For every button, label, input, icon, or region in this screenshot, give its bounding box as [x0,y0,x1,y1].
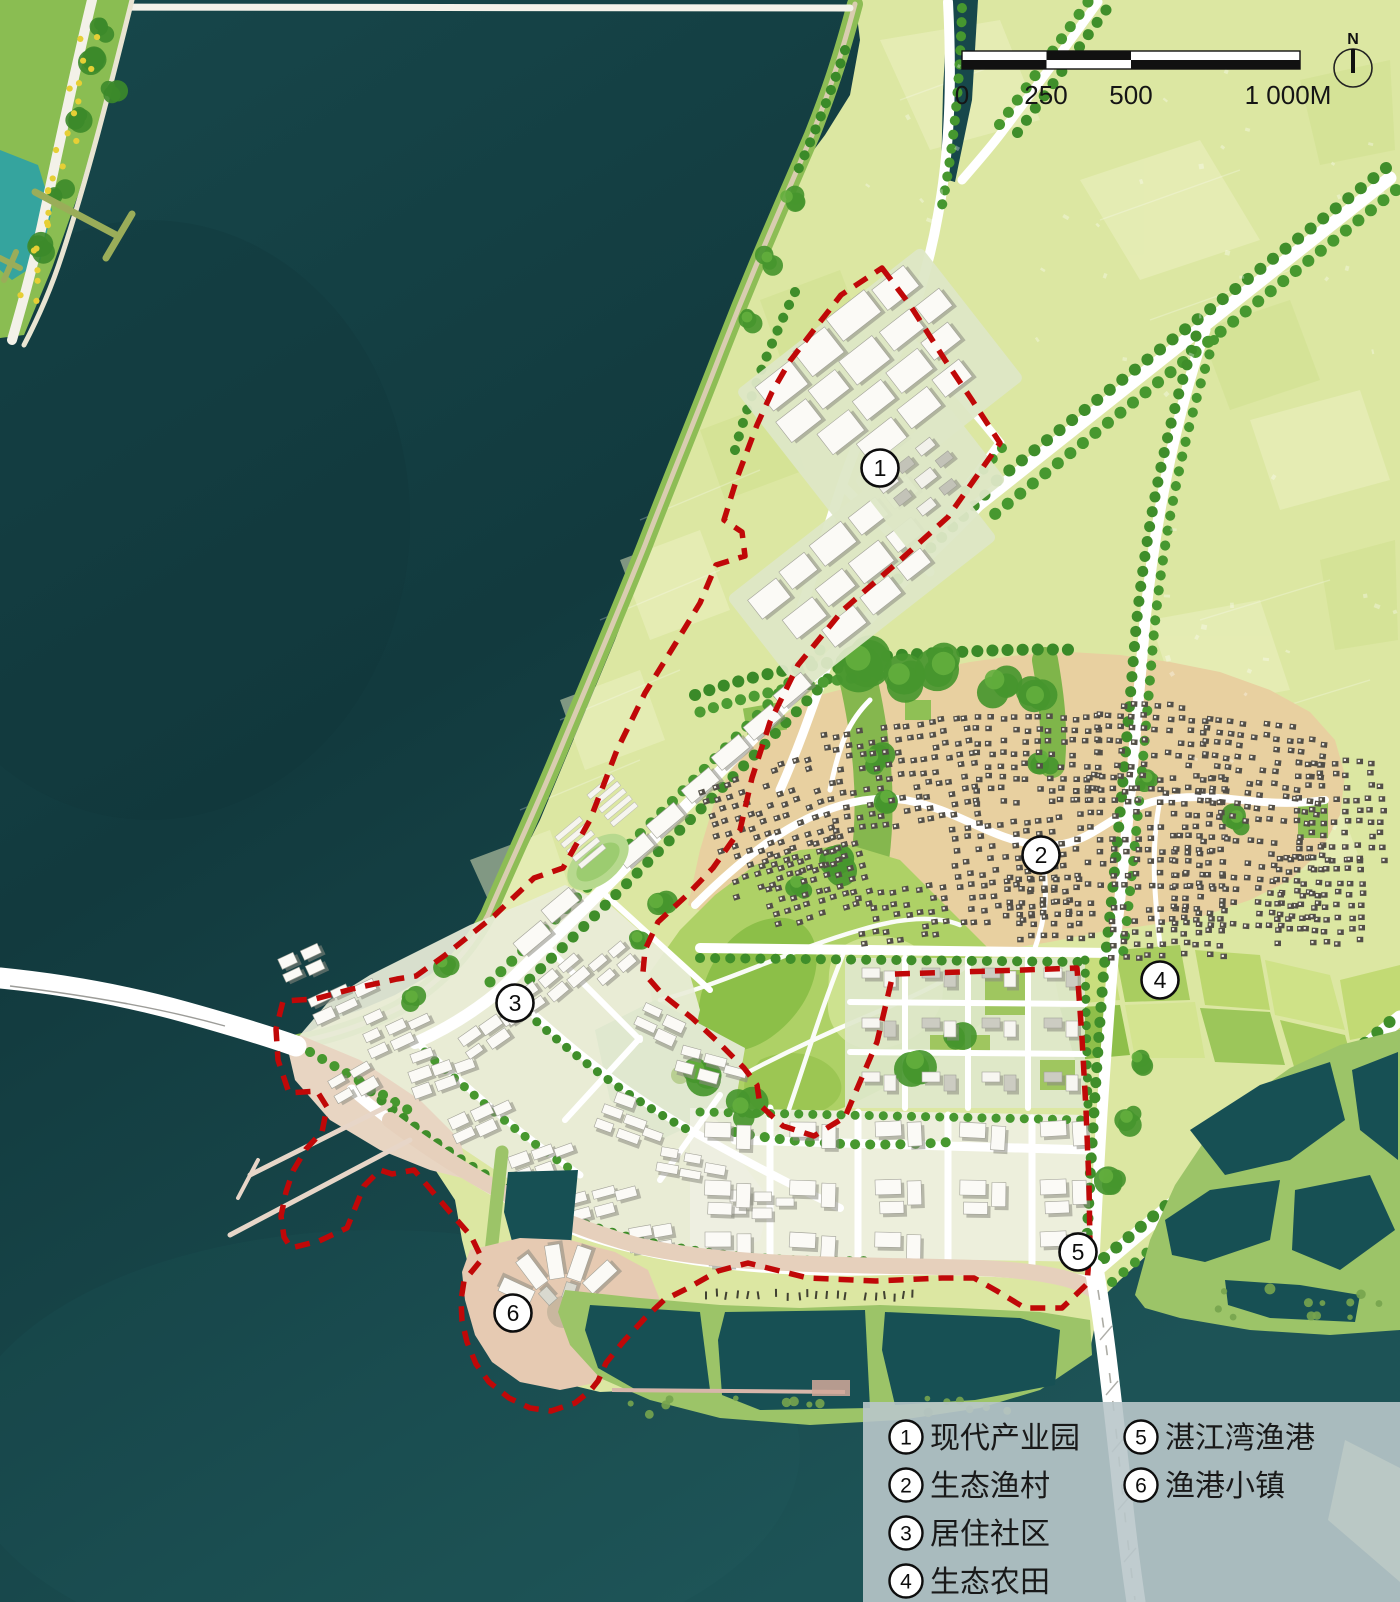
legend-item-1: 1 现代产业园 [890,1421,1081,1456]
svg-text:2: 2 [1035,842,1048,868]
svg-text:4: 4 [1154,967,1167,993]
legend-num-3: 3 [900,1523,912,1546]
marker-5: 5 [1060,1234,1097,1271]
legend-label-2: 生态渔村 [930,1470,1050,1503]
legend-item-5: 5 湛江湾渔港 [1125,1421,1316,1456]
legend-label-3: 居住社区 [930,1518,1050,1551]
legend-item-3: 3 居住社区 [890,1517,1051,1552]
north-label: N [1347,31,1359,48]
marker-1: 1 [862,450,899,487]
svg-text:3: 3 [509,990,522,1016]
legend-item-4: 4 生态农田 [890,1565,1051,1600]
svg-text:1: 1 [874,455,887,481]
marker-6: 6 [495,1295,532,1332]
map-canvas: 123456 0 250 500 1 000M N 1 现代产业园 2 生态渔村… [0,0,1400,1602]
legend-label-6: 渔港小镇 [1165,1470,1285,1503]
north-beach-strip [58,7,850,8]
scale-label-250: 250 [1024,80,1067,110]
legend-num-1: 1 [900,1427,912,1450]
legend-panel: 1 现代产业园 2 生态渔村 3 居住社区 4 生态农田 5 湛江湾渔港 6 渔… [863,1402,1400,1602]
legend-num-6: 6 [1135,1475,1147,1498]
legend-num-4: 4 [900,1571,912,1594]
plan-map-image: 123456 0 250 500 1 000M N 1 现代产业园 2 生态渔村… [0,0,1400,1602]
scale-label-500: 500 [1109,80,1152,110]
legend-label-5: 湛江湾渔港 [1165,1422,1315,1455]
legend-item-2: 2 生态渔村 [890,1469,1051,1504]
legend-label-4: 生态农田 [930,1566,1050,1599]
legend-num-2: 2 [900,1475,912,1498]
legend-label-1: 现代产业园 [930,1422,1080,1455]
legend-num-5: 5 [1135,1427,1147,1450]
marker-3: 3 [497,985,534,1022]
svg-text:6: 6 [507,1300,520,1326]
marker-2: 2 [1023,837,1060,874]
scale-label-1000: 1 000M [1245,80,1332,110]
marker-4: 4 [1142,962,1179,999]
scale-label-0: 0 [955,80,969,110]
legend-item-6: 6 渔港小镇 [1125,1469,1286,1504]
svg-text:5: 5 [1072,1239,1085,1265]
